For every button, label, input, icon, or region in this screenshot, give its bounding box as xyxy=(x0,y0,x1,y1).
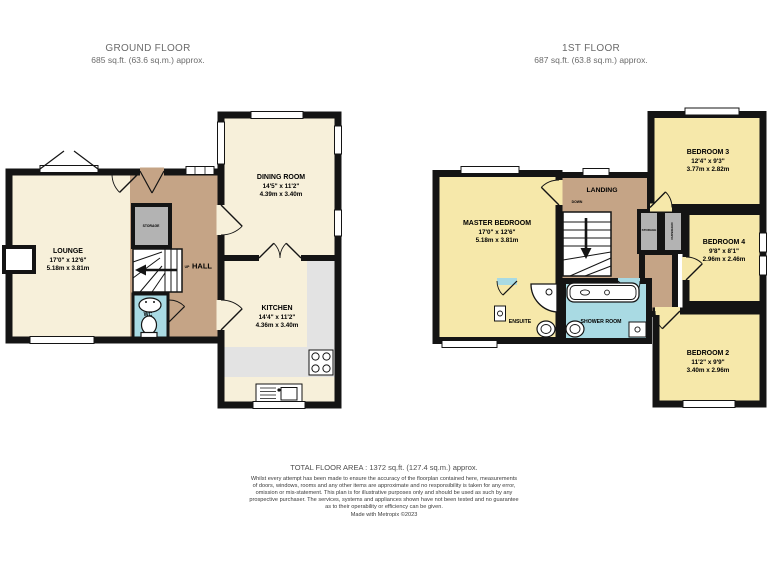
sink-icon xyxy=(139,298,161,312)
sink-icon xyxy=(495,306,506,321)
kitchen-sink-icon xyxy=(256,384,302,403)
toilet-icon xyxy=(537,321,555,337)
toilet-icon xyxy=(566,321,584,337)
bedroom-4-room xyxy=(686,212,763,305)
stove-icon xyxy=(309,350,333,375)
ground-floor-plan xyxy=(4,112,342,409)
bath-icon xyxy=(567,283,639,302)
kitchen-counter xyxy=(225,347,310,377)
stairs-down-icon xyxy=(563,212,611,276)
sink-icon xyxy=(629,322,646,337)
chimney-recess xyxy=(4,247,34,272)
storage-closet-1f xyxy=(639,211,659,252)
bedroom-3-room xyxy=(651,115,763,208)
storage-closet xyxy=(133,205,170,247)
first-floor-plan xyxy=(436,108,767,408)
floorplan-drawing xyxy=(0,0,768,576)
floorplan-page: GROUND FLOOR 685 sq.ft. (63.6 sq.m.) app… xyxy=(0,0,768,576)
bedroom-2-room xyxy=(656,311,763,404)
toilet-icon xyxy=(141,316,157,338)
stairs-up-icon xyxy=(133,249,182,292)
cupboard-closet xyxy=(663,211,683,252)
